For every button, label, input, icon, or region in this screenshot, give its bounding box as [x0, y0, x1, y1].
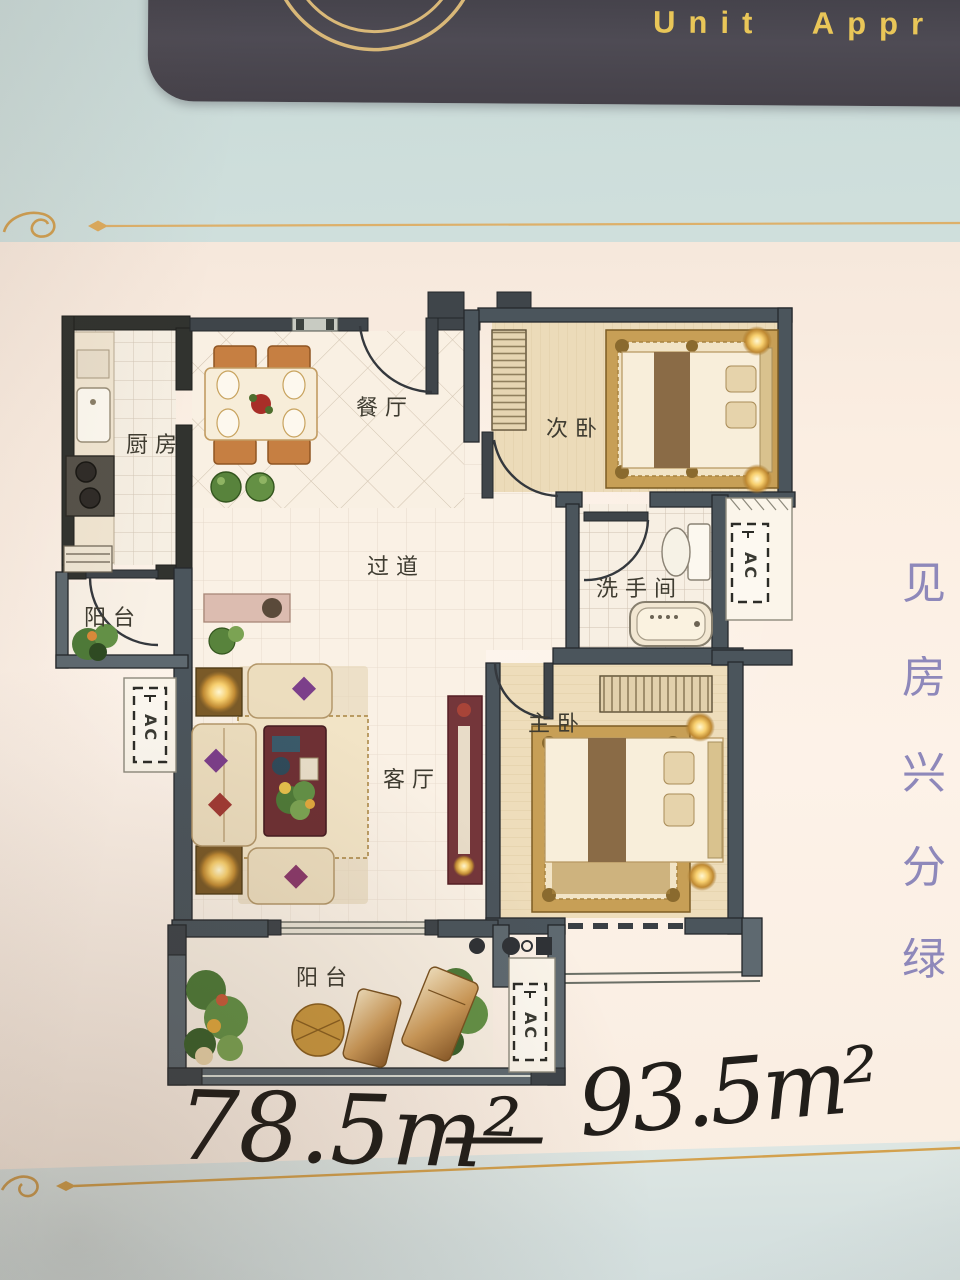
ac-unit-bottom: AC [509, 958, 555, 1072]
label-balcony-side: 阳台 [84, 606, 142, 631]
side-text-char: 兴 [902, 752, 960, 802]
label-living: 客厅 [383, 768, 441, 793]
ac-unit-right: AC [726, 498, 792, 620]
header-banner: Unit Appr [148, 0, 960, 107]
ac-unit-left: AC [124, 678, 176, 772]
label-kitchen: 厨房 [126, 433, 184, 458]
ac-label: AC [141, 714, 160, 742]
side-text-char: 分 [902, 846, 960, 896]
label-dining: 餐厅 [356, 396, 414, 421]
page-title: Unit Appr [653, 5, 936, 43]
floorplan-drawing: AC AC AC 厨房 餐厅 次卧 过道 洗手间 主卧 客厅 阳台 阳台 [0, 0, 960, 1280]
gold-emblem-icon [148, 0, 629, 104]
label-bedroom2: 次卧 [546, 417, 604, 442]
ac-label: AC [741, 552, 760, 580]
side-text-char: 绿 [902, 938, 960, 988]
label-balcony-bottom: 阳台 [296, 966, 354, 991]
label-master: 主卧 [528, 712, 586, 737]
photo-of-floorplan-brochure: AC AC AC 厨房 餐厅 次卧 过道 洗手间 主卧 客厅 阳台 阳台 [0, 0, 960, 1280]
side-text-char: 房 [902, 656, 960, 706]
label-hallway: 过道 [367, 555, 425, 580]
side-text-char: 见 [902, 562, 960, 612]
label-bathroom: 洗手间 [596, 577, 683, 602]
ac-label: AC [521, 1012, 540, 1040]
